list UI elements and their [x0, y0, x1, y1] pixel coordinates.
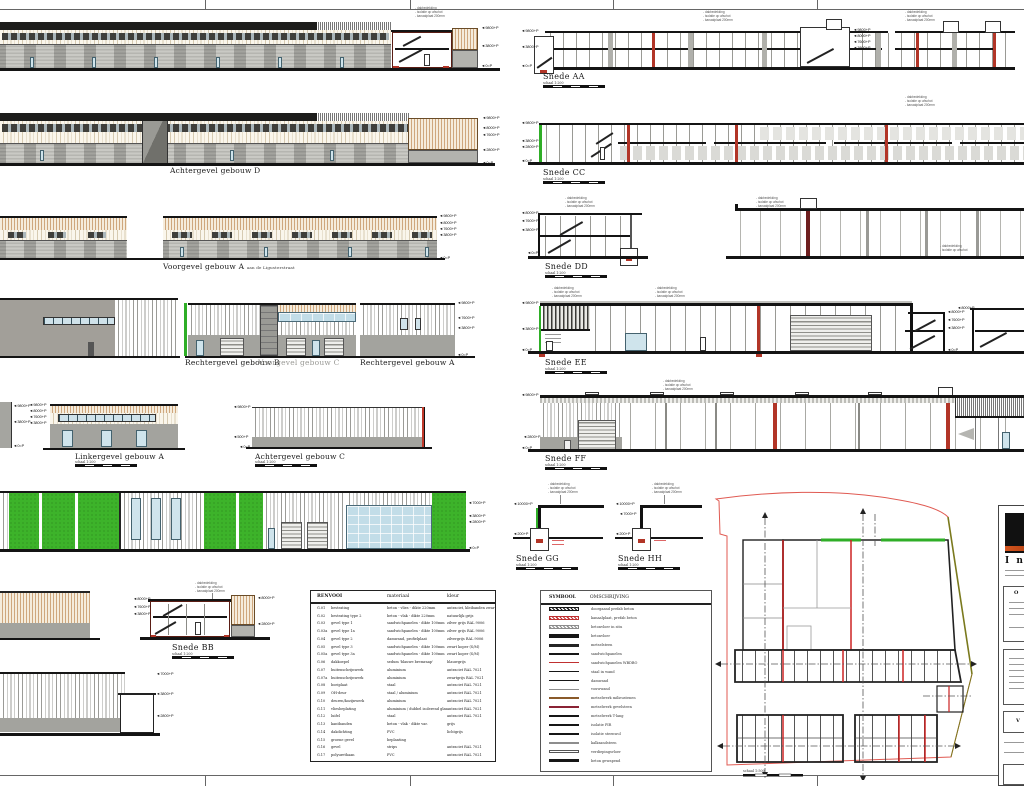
roof-band — [0, 22, 317, 30]
level-arrow-icon: ◂ — [522, 29, 524, 34]
door — [230, 150, 234, 161]
ground-line — [0, 258, 445, 260]
renvooi-kleur: antraciet RAL 7021 — [447, 668, 495, 672]
renvooi-col-kleur: kleur — [447, 594, 495, 599]
scale-bar: schaal 1:200 — [545, 463, 607, 470]
floor-line — [714, 142, 826, 144]
floor-line — [955, 416, 1024, 418]
roof-box — [943, 21, 959, 33]
renvooi-omschrijving: luifel — [331, 714, 387, 718]
level-arrow-icon: ◂ — [258, 622, 260, 627]
renvooi-kleur: antraciet RAL 7021 — [447, 691, 495, 695]
wall-block — [762, 33, 767, 67]
level-mark: ◂3800+P — [440, 233, 457, 238]
renvooi-omschrijving: OH-deur — [331, 691, 387, 695]
text-line — [1009, 627, 1024, 628]
parapet-panel — [317, 22, 391, 30]
level-text: 7600+P — [443, 227, 456, 231]
level-mark: ◂8000+P — [958, 306, 975, 311]
building-lower-left — [737, 715, 843, 762]
level-text: 3800+P — [485, 44, 498, 48]
level-arrow-icon: ◂ — [948, 318, 950, 323]
level-mark: ◂3800+P — [458, 326, 475, 331]
wall-block — [952, 33, 957, 67]
level-text: 0=P — [525, 159, 532, 163]
section-label: Snede CC — [543, 168, 585, 177]
symbool-swatch — [549, 706, 579, 708]
level-arrow-icon: ◂ — [522, 348, 524, 353]
symbool-swatch — [549, 653, 579, 654]
symbool-swatch — [549, 715, 579, 717]
text-line — [1009, 614, 1024, 615]
symbool-row: isolatie PIR — [541, 721, 711, 730]
section-label: Snede EE — [545, 358, 587, 367]
renvooi-row: G.12 luifel staal antraciet RAL 7021 — [311, 713, 495, 721]
renvooi-code: G.01 — [311, 606, 331, 610]
window — [48, 232, 66, 238]
symbool-row: kalkzandsteen — [541, 738, 711, 747]
level-arrow-icon: ◂ — [514, 502, 516, 507]
renvooi-row: G.05 gevel type 3 sandwichpanelen - dikt… — [311, 643, 495, 651]
level-mark: ◂0=P — [522, 348, 532, 353]
symbool-row: metselwerk gevelsteen — [541, 703, 711, 712]
symbool-row: isolatie steenwol — [541, 729, 711, 738]
renvooi-omschrijving: gevel type 3 — [331, 645, 387, 649]
grid-divider — [613, 776, 614, 786]
renvooi-code: G.17 — [311, 753, 331, 757]
facade-band — [263, 493, 346, 549]
stair-line — [403, 36, 421, 47]
row-snede-bb: - dakbedekking - isolatie op afschot - k… — [0, 585, 310, 660]
snede-ee: - dakbedekking - isolatie op afschot - k… — [512, 280, 1024, 375]
renvooi-kleur: antraciet RAL 7021 — [447, 714, 495, 718]
level-mark: ◂7000+P — [157, 672, 174, 677]
ground-line — [43, 448, 185, 450]
renvooi-kleur: lichtgrijs — [447, 730, 495, 734]
level-text: 7600+P — [137, 605, 150, 609]
symbool-description: damwand — [591, 679, 608, 683]
annotation-note: - dakbedekking - isolatie op afschot - k… — [195, 581, 225, 593]
level-text: 3800+P — [137, 612, 150, 616]
level-mark: ◂8000+P — [440, 221, 457, 226]
scale-seg — [755, 774, 767, 777]
base-panel — [231, 625, 255, 637]
renvooi-row: G.07a buitenschrijnwerk aluminium zwartg… — [311, 674, 495, 682]
annotation-note: - dakbedekking - isolatie op afschot - k… — [905, 10, 935, 22]
window-band — [2, 33, 389, 40]
door — [330, 150, 334, 161]
level-text: 0=P — [951, 348, 958, 352]
symbool-swatch — [549, 750, 579, 753]
window-strip — [58, 414, 156, 422]
red-dash — [552, 540, 564, 541]
stair-line — [155, 621, 177, 634]
title-block-box — [1003, 764, 1024, 785]
renvooi-materiaal: staal / aluminium — [387, 691, 447, 695]
ground-line — [0, 68, 500, 71]
level-text: 2800+P — [527, 435, 540, 439]
ground-line — [528, 449, 1024, 452]
facade-band — [0, 674, 125, 718]
cladding-panel — [231, 595, 255, 625]
column — [925, 211, 928, 256]
level-text: 10000+P — [517, 502, 532, 506]
window-band — [2, 124, 408, 132]
entrance-bay — [142, 121, 168, 163]
level-arrow-icon: ◂ — [469, 501, 471, 506]
renvooi-omschrijving: gevel — [331, 745, 387, 749]
renvooi-kleur: zilver grijs RAL 9006 — [447, 621, 495, 625]
door — [312, 340, 320, 356]
level-mark: ◂2800+P — [483, 148, 500, 153]
level-text: 0=P — [531, 251, 538, 255]
ground-line — [513, 537, 603, 539]
level-text: 0=P — [525, 446, 532, 450]
level-mark: ◂2800+P — [522, 145, 539, 150]
level-text: 7600+P — [461, 316, 474, 320]
level-mark: ◂10000+P — [514, 502, 533, 507]
facade-band — [115, 300, 178, 356]
column — [976, 211, 979, 256]
stair-line — [163, 604, 183, 616]
renvooi-materiaal: staal — [387, 683, 447, 687]
section-label: Snede AA — [543, 72, 585, 81]
symbool-swatch — [549, 759, 579, 761]
level-text: 0=P — [243, 445, 250, 449]
floor-line — [540, 235, 632, 237]
door — [180, 247, 184, 257]
column — [168, 604, 169, 635]
tall-door — [131, 498, 141, 540]
level-mark: ◂8000+P — [483, 126, 500, 131]
symbool-col: OMSCHRIJVING — [590, 595, 629, 600]
level-arrow-icon: ◂ — [483, 133, 485, 138]
scale-bar: schaal 1:200 — [618, 563, 680, 570]
scale-bar-graphic — [543, 181, 605, 184]
renvooi-omschrijving: dakkoepel — [331, 660, 387, 664]
symbool-title: SYMBOOL — [549, 595, 576, 600]
company-logo — [1005, 513, 1024, 553]
annotation-note: - dakbedekking - isolatie op afschot - k… — [652, 482, 682, 494]
renvooi-row: G.07 buitenschrijnwerk aluminium antraci… — [311, 666, 495, 674]
green-panel — [239, 493, 263, 549]
glass-wall — [346, 505, 432, 549]
symbool-row: metselsteen — [541, 641, 711, 650]
level-text: 7600+P — [525, 219, 538, 223]
renvooi-code: G.15 — [311, 738, 331, 742]
level-arrow-icon: ◂ — [469, 514, 471, 519]
floor-line — [618, 142, 706, 144]
cladding-panel — [408, 118, 478, 150]
elevation-label: Achtergevel gebouw D — [170, 166, 260, 175]
window — [332, 232, 352, 238]
level-arrow-icon: ◂ — [469, 520, 471, 525]
level-text: 9800+P — [485, 26, 498, 30]
door — [1002, 432, 1010, 449]
snede-ff: - dakbedekking - isolatie op afschot - k… — [512, 375, 1024, 470]
level-text: 500+P — [237, 435, 248, 439]
wall — [943, 312, 945, 351]
arrow-icon — [717, 743, 723, 749]
scale-bar: schaal 1:200 — [543, 177, 605, 184]
text-line — [1009, 682, 1024, 683]
renvooi-code: G.05 — [311, 645, 331, 649]
building-main — [783, 540, 955, 650]
level-text: 200+P — [517, 532, 528, 536]
stairwell-box — [534, 36, 554, 74]
level-mark: ◂2800+P — [258, 622, 275, 627]
symbool-description: verdiepingsvloer — [591, 750, 621, 754]
shelf-line — [545, 338, 561, 339]
renvooi-code: G.05a — [311, 652, 331, 656]
door — [88, 342, 94, 356]
annex-wall — [120, 694, 154, 733]
renvooi-title: RENVOOI — [311, 594, 331, 599]
note-line: - kanaalplaat 200mm — [195, 589, 225, 593]
level-arrow-icon: ◂ — [14, 404, 16, 409]
partition — [998, 418, 999, 449]
renvooi-materiaal: PVC — [387, 730, 447, 734]
double-door — [136, 430, 147, 447]
ground-line — [615, 537, 703, 539]
roller-door — [324, 338, 344, 356]
level-text: 3800+P — [525, 139, 538, 143]
level-text: 9800+P — [525, 121, 538, 125]
roof-slab — [908, 312, 945, 314]
title-block-box — [1003, 649, 1024, 705]
facade-band — [0, 493, 9, 549]
roller-door — [220, 338, 244, 356]
level-arrow-icon: ◂ — [620, 512, 622, 517]
level-arrow-icon: ◂ — [157, 714, 159, 719]
level-mark: ◂9800+P — [482, 26, 499, 31]
ground-line — [140, 637, 270, 640]
level-text: 7600+P — [857, 40, 870, 44]
renvooi-row: G.01 bestrating beton - vlies - dikte 22… — [311, 604, 495, 612]
red-column — [993, 33, 996, 67]
red-column — [916, 33, 919, 67]
symbool-legend: SYMBOOL OMSCHRIJVING doorgaand prefab be… — [540, 590, 712, 772]
level-text: 9800+P — [857, 28, 870, 32]
level-arrow-icon: ◂ — [522, 121, 524, 126]
red-marker — [539, 354, 545, 357]
level-mark: ◂9800+P — [522, 29, 539, 34]
symbool-swatch — [549, 742, 579, 743]
level-mark: ◂7600+P — [522, 219, 539, 224]
level-text: 3800+P — [525, 228, 538, 232]
note-line: - kanaalplaat 200mm — [703, 18, 733, 22]
title-block-heading: V — [1016, 718, 1020, 724]
level-arrow-icon: ◂ — [258, 596, 260, 601]
facade-band — [188, 305, 260, 335]
level-mark: ◂7600+P — [854, 40, 871, 45]
level-arrow-icon: ◂ — [30, 403, 32, 408]
green-panel — [78, 493, 119, 549]
facade-band — [346, 493, 432, 505]
base-band — [252, 437, 424, 447]
annotation-note: - dakbedekking - isolatie op afschot - k… — [655, 286, 685, 298]
symbool-description: kalkzandsteen — [591, 741, 616, 745]
level-text: 7000+P — [160, 672, 173, 676]
level-mark: ◂2800+P — [469, 520, 486, 525]
red-dash — [654, 540, 666, 541]
renvooi-code: G.13 — [311, 722, 331, 726]
door-band — [0, 240, 127, 258]
section-label: Snede FF — [545, 454, 586, 463]
level-mark: ◂0=P — [240, 445, 250, 450]
renvooi-materiaal: staal — [387, 714, 447, 718]
scale-bar-graphic — [545, 467, 607, 470]
stairwell-box — [800, 27, 850, 67]
level-arrow-icon: ◂ — [440, 233, 442, 238]
level-arrow-icon: ◂ — [528, 251, 530, 256]
door-band — [0, 44, 391, 68]
level-text: 200+P — [619, 532, 630, 536]
renvooi-row: G.17 polyurethaan PVC antraciet RAL 7021 — [311, 751, 495, 759]
level-mark: ◂500+P — [234, 435, 248, 440]
renvooi-kleur: grijs — [447, 722, 495, 726]
renvooi-omschrijving: gevel type 1a — [331, 629, 387, 633]
level-arrow-icon: ◂ — [616, 502, 618, 507]
door — [216, 57, 220, 68]
level-text: 0=P — [525, 348, 532, 352]
level-arrow-icon: ◂ — [948, 348, 950, 353]
building-strip — [735, 650, 961, 682]
level-mark: ◂9800+P — [234, 405, 251, 410]
level-arrow-icon: ◂ — [514, 532, 516, 537]
level-mark: ◂0=P — [522, 64, 532, 69]
level-arrow-icon: ◂ — [854, 46, 856, 51]
floor-line — [153, 616, 227, 618]
ground-line — [0, 356, 180, 358]
symbool-description: betonvloer in situ — [591, 625, 622, 629]
ground-line — [0, 549, 470, 552]
renvooi-materiaal: sandwichpanelen - dikte 100mm — [387, 645, 447, 649]
level-text: 8000+P — [961, 306, 974, 310]
level-arrow-icon: ◂ — [157, 672, 159, 677]
level-arrow-icon: ◂ — [522, 228, 524, 233]
renvooi-omschrijving: polyurethaan — [331, 753, 387, 757]
red-column — [735, 125, 738, 162]
symbool-row: sandwichpanelen WBDBO — [541, 658, 711, 667]
level-arrow-icon: ◂ — [240, 445, 242, 450]
red-column — [773, 403, 777, 449]
level-arrow-icon: ◂ — [440, 221, 442, 226]
symbool-swatch — [549, 697, 579, 699]
facade-band — [163, 218, 437, 230]
scale-bar: schaal 1:200 — [545, 367, 607, 374]
level-mark: ◂3800+P — [14, 420, 31, 425]
drawing-sheet: - dakbedekking - isolatie op afschot - k… — [0, 0, 1024, 786]
scale-bar: schaal 1:200 — [75, 460, 137, 467]
annotation-note: - dakbedekking - isolatie op afschot - k… — [703, 10, 733, 22]
divider — [1005, 570, 1024, 571]
renvooi-row: G.16 gevel strips antraciet RAL 7021 — [311, 744, 495, 752]
level-mark: ◂7600+P — [440, 227, 457, 232]
renvooi-code: G.12 — [311, 714, 331, 718]
window — [412, 232, 432, 238]
level-mark: ◂0=P — [528, 251, 538, 256]
door — [196, 340, 204, 356]
grid-divider — [205, 776, 206, 786]
level-arrow-icon: ◂ — [616, 532, 618, 537]
red-column — [757, 306, 760, 351]
green-panel — [432, 493, 466, 549]
level-text: 8000+P — [443, 221, 456, 225]
symbool-swatch — [549, 625, 579, 629]
site-scale-bar — [743, 774, 803, 777]
scale-bar-graphic — [618, 567, 680, 570]
wall-block — [688, 33, 693, 67]
level-mark: ◂8000+P — [30, 409, 47, 414]
level-mark: ◂3800+P — [482, 44, 499, 49]
level-mark: ◂9800+P — [483, 116, 500, 121]
level-arrow-icon: ◂ — [522, 64, 524, 69]
note-line: - kanaalplaat 200mm — [905, 103, 935, 107]
double-door — [625, 333, 647, 351]
level-arrow-icon: ◂ — [522, 139, 524, 144]
double-door — [62, 430, 73, 447]
floor-line — [895, 48, 995, 50]
note-line: - kanaalplaat 200mm — [652, 490, 682, 494]
renvooi-materiaal: beton - vlak - dikte 220mm — [387, 614, 447, 618]
level-mark: ◂9800+P — [522, 393, 539, 398]
note-line: - kanaalplaat 200mm — [905, 18, 935, 22]
annotation-note: - dakbedekking - isolatie op afschot - k… — [548, 482, 578, 494]
renvooi-materiaal: aluminium — [387, 668, 447, 672]
level-mark: ◂3800+P — [469, 514, 486, 519]
door — [348, 247, 352, 257]
stair-line — [980, 332, 1007, 347]
scale-seg — [767, 774, 779, 777]
level-mark: ◂9800+P — [458, 301, 475, 306]
level-mark: ◂9800+P — [14, 404, 31, 409]
window-band — [278, 312, 356, 322]
renvooi-code: G.09 — [311, 691, 331, 695]
level-mark: ◂8000+P — [948, 310, 965, 315]
level-arrow-icon: ◂ — [522, 393, 524, 398]
ground-line — [528, 162, 1024, 165]
label-text: Voorgevel gebouw A — [163, 262, 244, 271]
symbool-description: doorgaand prefab beton — [591, 607, 634, 611]
symbool-row: metselwerk T-lang — [541, 712, 711, 721]
column — [186, 604, 187, 635]
section-cut-box — [392, 32, 452, 68]
symbool-swatch — [549, 662, 579, 663]
level-text: 0=P — [461, 353, 468, 357]
symbool-description: metselsteen — [591, 643, 612, 647]
level-mark: ◂7600+P — [948, 318, 965, 323]
renvooi-materiaal: beplanting — [387, 738, 447, 742]
scale-bar: schaal 1:200 — [516, 563, 578, 570]
renvooi-code: G.10 — [311, 699, 331, 703]
renvooi-header: RENVOOI materiaal kleur — [311, 591, 495, 604]
level-mark: ◂0=P — [483, 161, 493, 166]
level-mark: ◂200+P — [616, 532, 630, 537]
scale-bar: schaal 1:200 — [255, 460, 317, 467]
snede-gg: - dakbedekking - isolatie op afschot - k… — [512, 480, 612, 575]
renvooi-row: G.03a gevel type 1a sandwichpanelen - di… — [311, 627, 495, 635]
annotation-note: - dakbedekking - isolatie op afschot - k… — [905, 95, 935, 107]
level-mark: ◂0=P — [482, 64, 492, 69]
base-band — [0, 623, 90, 638]
renvooi-kleur: natuurlijk grijs — [447, 614, 495, 618]
level-mark: ◂8000+P — [854, 34, 871, 39]
level-mark: ◂3800+P — [522, 327, 539, 332]
symbool-description: staal in wand — [591, 670, 615, 674]
level-mark: ◂0=P — [948, 348, 958, 353]
level-arrow-icon: ◂ — [30, 415, 32, 420]
